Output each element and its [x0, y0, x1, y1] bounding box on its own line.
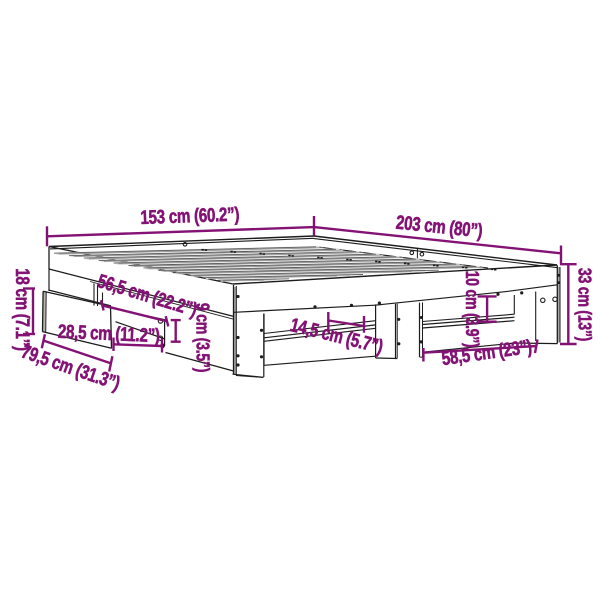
- svg-text:33 cm (13”): 33 cm (13”): [574, 268, 594, 341]
- svg-text:28,5 cm (11.2”): 28,5 cm (11.2”): [57, 320, 160, 347]
- svg-text:153 cm (60.2”): 153 cm (60.2”): [140, 203, 239, 229]
- svg-text:10 cm (3.9”): 10 cm (3.9”): [461, 271, 481, 348]
- svg-text:18 cm (7.1”): 18 cm (7.1”): [12, 268, 34, 350]
- svg-text:9 cm (3.5”): 9 cm (3.5”): [192, 303, 212, 372]
